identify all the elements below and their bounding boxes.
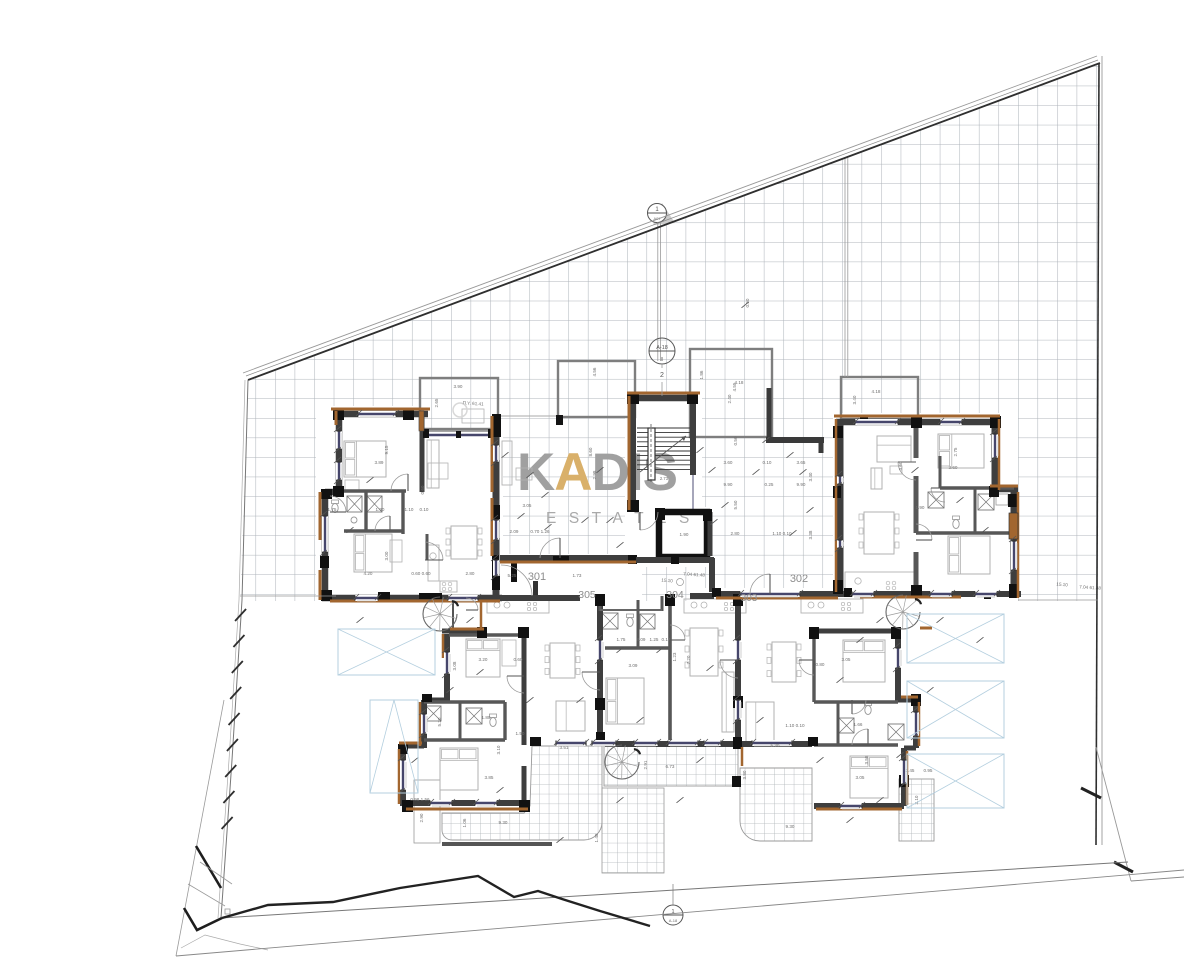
svg-text:0.10: 0.10: [763, 460, 772, 465]
svg-text:2.09: 2.09: [510, 529, 519, 534]
svg-text:1.80: 1.80: [482, 715, 491, 720]
svg-text:7.20: 7.20: [686, 655, 691, 664]
svg-text:3.10: 3.10: [496, 745, 501, 754]
svg-text:2.73: 2.73: [660, 476, 669, 481]
svg-text:2.91: 2.91: [643, 760, 648, 769]
svg-text:II: II: [661, 357, 664, 363]
svg-text:4.56: 4.56: [592, 367, 597, 376]
svg-text:1.75: 1.75: [328, 507, 337, 512]
svg-text:3.38: 3.38: [808, 530, 813, 539]
svg-text:1.10: 1.10: [405, 507, 414, 512]
svg-text:0.98 1.56: 0.98 1.56: [410, 797, 430, 802]
svg-text:1.48: 1.48: [594, 833, 599, 842]
svg-text:302: 302: [790, 573, 808, 585]
svg-text:5.25: 5.25: [508, 573, 517, 578]
svg-text:1.90: 1.90: [680, 532, 689, 537]
svg-text:4.09: 4.09: [637, 637, 646, 642]
svg-text:305: 305: [578, 589, 596, 601]
svg-text:9.30: 9.30: [499, 820, 508, 825]
svg-text:1.90: 1.90: [916, 505, 925, 510]
svg-text:0.60: 0.60: [514, 657, 523, 662]
svg-text:5.50: 5.50: [733, 500, 738, 509]
svg-text:3.00: 3.00: [384, 551, 389, 560]
svg-text:5.20: 5.20: [437, 717, 442, 726]
svg-text:2.90: 2.90: [419, 813, 424, 822]
svg-text:4.20: 4.20: [364, 571, 373, 576]
svg-text:303: 303: [741, 593, 758, 604]
svg-text:1.66: 1.66: [854, 722, 863, 727]
svg-text:2.65: 2.65: [434, 398, 439, 407]
svg-text:9.90: 9.90: [797, 482, 806, 487]
svg-text:1.10 0.10: 1.10 0.10: [772, 531, 792, 536]
svg-text:3.40: 3.40: [808, 472, 813, 481]
svg-text:0.17: 0.17: [662, 637, 671, 642]
svg-text:15.10: 15.10: [661, 578, 673, 584]
svg-text:1.10 0.10: 1.10 0.10: [785, 723, 805, 728]
svg-text:6.73: 6.73: [666, 764, 675, 769]
svg-text:0.25: 0.25: [765, 482, 774, 487]
svg-text:3.60: 3.60: [724, 460, 733, 465]
svg-text:3.05: 3.05: [856, 775, 865, 780]
svg-text:0.95: 0.95: [924, 768, 933, 773]
svg-text:3.09: 3.09: [629, 663, 638, 668]
svg-text:2.98: 2.98: [592, 470, 597, 479]
svg-text:1.86: 1.86: [699, 370, 704, 379]
svg-text:A-18: A-18: [656, 345, 668, 351]
svg-text:2.75: 2.75: [953, 447, 958, 456]
svg-text:1.75: 1.75: [617, 637, 626, 642]
svg-text:3.80: 3.80: [742, 770, 747, 779]
svg-text:1.06: 1.06: [462, 818, 467, 827]
svg-text:3.60: 3.60: [949, 465, 958, 470]
svg-text:3.89: 3.89: [375, 460, 384, 465]
svg-text:1.23: 1.23: [672, 652, 677, 661]
svg-text:3.65: 3.65: [797, 460, 806, 465]
svg-text:8.60: 8.60: [588, 447, 593, 456]
svg-text:0.60: 0.60: [420, 485, 425, 494]
svg-text:2.80: 2.80: [731, 531, 740, 536]
svg-text:3.08: 3.08: [452, 661, 457, 670]
svg-text:2: 2: [660, 372, 664, 379]
svg-text:301: 301: [528, 571, 546, 583]
svg-text:9.90: 9.90: [724, 482, 733, 487]
svg-text:3.90: 3.90: [454, 384, 463, 389]
svg-text:15.10: 15.10: [1056, 582, 1068, 588]
svg-text:0.60 0.60: 0.60 0.60: [411, 571, 431, 576]
svg-text:3.20: 3.20: [479, 657, 488, 662]
svg-text:9.15: 9.15: [384, 445, 389, 454]
svg-text:0.10: 0.10: [420, 507, 429, 512]
svg-text:2.80: 2.80: [466, 571, 475, 576]
svg-text:0.50: 0.50: [733, 436, 738, 445]
svg-text:1.25: 1.25: [650, 637, 659, 642]
svg-text:1.73: 1.73: [573, 573, 582, 578]
svg-text:304: 304: [666, 589, 684, 601]
svg-text:5.30: 5.30: [771, 743, 780, 748]
svg-text:1.50: 1.50: [516, 731, 525, 736]
svg-text:0.70 1.26: 0.70 1.26: [530, 529, 550, 534]
svg-text:2.40: 2.40: [727, 394, 732, 403]
svg-text:3.58: 3.58: [864, 755, 869, 764]
svg-text:4.18: 4.18: [872, 389, 881, 394]
svg-text:3.51: 3.51: [560, 745, 569, 750]
svg-text:1.90: 1.90: [376, 507, 385, 512]
svg-text:3.85: 3.85: [485, 775, 494, 780]
svg-text:3.60: 3.60: [898, 461, 903, 470]
svg-text:A-18: A-18: [669, 918, 678, 923]
svg-text:3.40: 3.40: [852, 395, 857, 404]
svg-text:3.05: 3.05: [842, 657, 851, 662]
svg-text:3.05: 3.05: [523, 503, 532, 508]
svg-text:9.30: 9.30: [786, 824, 795, 829]
svg-text:4.18: 4.18: [735, 380, 744, 385]
svg-text:0.80: 0.80: [816, 662, 825, 667]
